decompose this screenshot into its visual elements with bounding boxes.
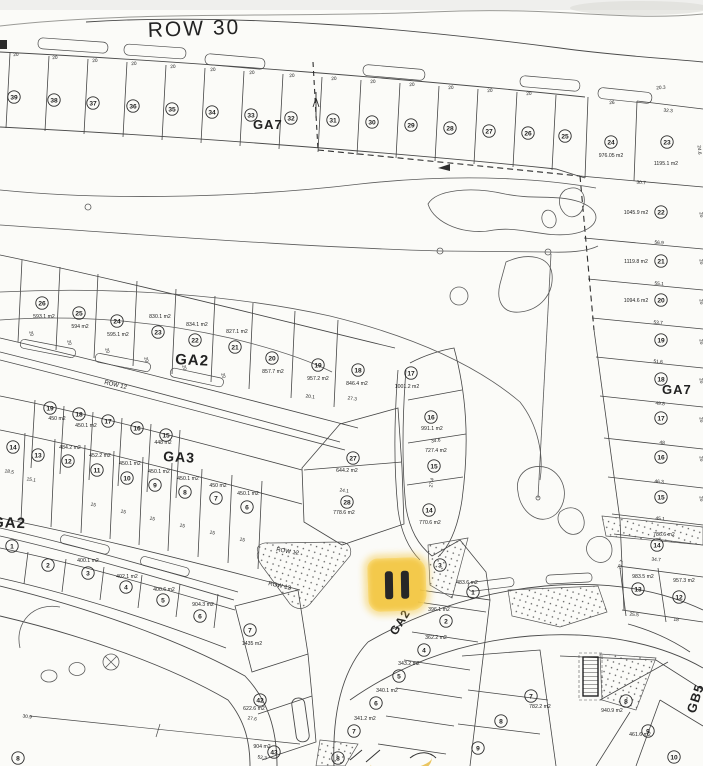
- region-label: ROW 30: [147, 16, 240, 42]
- map-canvas: ROW 30GA7GA7GA2GA3GA2GA2GB5ROW 12ROW 12R…: [0, 0, 703, 766]
- dim-label: 46.3: [654, 479, 664, 486]
- dim-label: 15: [209, 530, 216, 537]
- svg-text:20: 20: [268, 355, 276, 362]
- area-label: 400.1 m2: [77, 558, 99, 564]
- lot-number: 19: [312, 359, 324, 371]
- svg-text:6: 6: [374, 700, 378, 707]
- svg-text:19: 19: [46, 405, 54, 412]
- area-label: 644.2 m2: [336, 468, 358, 474]
- region-label: GA2: [387, 607, 414, 638]
- lot-number: 18: [655, 373, 667, 385]
- lot-number: 9: [472, 742, 484, 754]
- area-label: 450 m2: [48, 416, 65, 422]
- area-label: 461.6 m2: [629, 732, 651, 738]
- svg-text:18: 18: [657, 376, 665, 383]
- svg-text:13: 13: [634, 586, 642, 593]
- lot-number: 25: [73, 307, 85, 319]
- pause-icon-bar: [385, 571, 393, 599]
- lot-number: 4: [120, 581, 132, 593]
- area-label: 622.6 m2: [243, 706, 265, 712]
- plat-map-page: ROW 30GA7GA7GA2GA3GA2GA2GB5ROW 12ROW 12R…: [0, 0, 703, 766]
- svg-text:14: 14: [425, 507, 433, 514]
- svg-text:15: 15: [162, 432, 170, 439]
- dim-label: 20: [13, 52, 19, 58]
- svg-text:39: 39: [10, 94, 18, 101]
- hatched-areas: [257, 516, 703, 766]
- dim-label: 52.3: [257, 754, 267, 761]
- dim-label: 15: [120, 509, 127, 516]
- dim-label: 15: [149, 516, 156, 523]
- area-label: 770.6 m2: [419, 520, 441, 526]
- svg-text:7: 7: [248, 627, 252, 634]
- lot-number: 17: [405, 367, 417, 379]
- svg-text:8: 8: [499, 718, 503, 725]
- area-label: 450.1 m2: [119, 461, 141, 467]
- area-label: 450 m2: [209, 483, 226, 489]
- lot-number: 26: [36, 297, 48, 309]
- dim-label: 45.1: [655, 516, 665, 523]
- lot-number: 8: [179, 486, 191, 498]
- svg-text:3: 3: [438, 562, 442, 569]
- dim-label: 15: [179, 523, 186, 530]
- dim-label: 20: [698, 417, 703, 424]
- svg-text:8: 8: [16, 755, 20, 762]
- area-label: 727.4 m2: [425, 448, 447, 454]
- lot-number: 28: [341, 496, 353, 508]
- lot-number: 13: [32, 449, 44, 461]
- svg-text:26: 26: [38, 300, 46, 307]
- dim-label: 20: [370, 79, 376, 85]
- svg-text:12: 12: [64, 458, 72, 465]
- svg-text:7: 7: [214, 495, 218, 502]
- lot-number: 34: [206, 106, 218, 118]
- lot-number: 31: [327, 114, 339, 126]
- area-label: 957.3 m2: [673, 578, 695, 584]
- svg-text:35: 35: [168, 106, 176, 113]
- area-label: 593.1 m2: [33, 314, 55, 320]
- dim-label: 24.1: [339, 487, 349, 494]
- dim-label: 20: [526, 91, 532, 97]
- svg-text:16: 16: [427, 414, 435, 421]
- dim-label: 49.8: [655, 401, 665, 408]
- svg-text:6: 6: [245, 504, 249, 511]
- lot-number: 2: [440, 615, 452, 627]
- svg-text:20: 20: [657, 297, 665, 304]
- lot-number: 10: [121, 472, 133, 484]
- area-label: 484.2 m2: [59, 445, 81, 451]
- lot-number: 6: [370, 697, 382, 709]
- svg-text:32: 32: [287, 115, 295, 122]
- area-label: 786.6 m2: [653, 532, 675, 538]
- area-label: 400.6 m2: [153, 587, 175, 593]
- svg-text:18: 18: [354, 367, 362, 374]
- area-label: 340.1 m2: [376, 688, 398, 694]
- area-label: 957.2 m2: [307, 376, 329, 382]
- lot-number: 7: [348, 725, 360, 737]
- lot-number: 25: [559, 130, 571, 142]
- svg-text:25: 25: [75, 310, 83, 317]
- svg-text:14: 14: [9, 444, 17, 451]
- lot-number: 2: [42, 559, 54, 571]
- dim-label: 20.3: [656, 85, 666, 92]
- dim-label: 53.7: [653, 320, 663, 327]
- svg-text:28: 28: [446, 125, 454, 132]
- dim-label: 20: [170, 64, 176, 70]
- lot-number: 38: [48, 94, 60, 106]
- svg-text:17: 17: [104, 418, 112, 425]
- area-label: 402.1 m2: [116, 574, 138, 580]
- lot-number: 1: [467, 586, 479, 598]
- svg-text:18: 18: [75, 411, 83, 418]
- area-label: 857.7 m2: [262, 369, 284, 375]
- area-label: 362.2 m2: [425, 635, 447, 641]
- svg-text:11: 11: [94, 467, 101, 474]
- highlight-marker[interactable]: [367, 557, 427, 612]
- svg-text:17: 17: [407, 370, 415, 377]
- dim-label: 32.3: [663, 108, 673, 115]
- lot-number: 16: [655, 451, 667, 463]
- lot-number: 15: [655, 491, 667, 503]
- svg-text:21: 21: [657, 258, 665, 265]
- region-label: GA2: [0, 514, 26, 532]
- dim-label: 20: [698, 212, 703, 219]
- lot-number: 28: [444, 122, 456, 134]
- dim-label: 20: [131, 61, 137, 67]
- dim-label: 20: [289, 73, 295, 79]
- lot-number: 32: [285, 112, 297, 124]
- lot-number: 21: [655, 255, 667, 267]
- pause-icon-bar: [401, 570, 409, 598]
- lot-number: 24: [605, 136, 617, 148]
- lot-number: 14: [7, 441, 19, 453]
- dim-label: 51.6: [653, 359, 663, 366]
- dim-label: 18: [673, 617, 679, 623]
- area-label: 940.9 m2: [601, 708, 623, 714]
- dim-label: 30.7: [636, 180, 646, 187]
- svg-text:12: 12: [675, 594, 683, 601]
- svg-text:29: 29: [407, 122, 415, 129]
- svg-text:5: 5: [161, 597, 165, 604]
- building-footprint: [583, 657, 598, 696]
- lot-number: 14: [423, 504, 435, 516]
- svg-text:37: 37: [89, 100, 97, 107]
- dim-label: 34.6: [431, 437, 441, 444]
- area-label: 450.1 m2: [75, 423, 97, 429]
- lot-number: 26: [522, 127, 534, 139]
- labels-layer: ROW 30GA7GA7GA2GA3GA2GA2GB5ROW 12ROW 12R…: [0, 16, 703, 764]
- region-label: GA7: [662, 382, 692, 397]
- svg-text:30: 30: [368, 119, 376, 126]
- dim-label: 20: [698, 378, 703, 385]
- area-label: 343.2 m2: [398, 661, 420, 667]
- dashed-boundary: [313, 62, 594, 330]
- area-label: 1435 m2: [242, 641, 262, 647]
- dim-label: 34.7: [651, 557, 661, 564]
- lot-number: 19: [655, 334, 667, 346]
- svg-text:13: 13: [34, 452, 42, 459]
- dim-label: 20: [487, 88, 493, 94]
- dim-label: 20: [65, 339, 72, 346]
- lot-number: 36: [127, 100, 139, 112]
- lot-number: 4: [418, 644, 430, 656]
- svg-text:9: 9: [476, 745, 480, 752]
- dim-label: 20: [409, 82, 415, 88]
- area-label: 396.1 m2: [428, 607, 450, 613]
- area-label: 991.1 m2: [421, 426, 443, 432]
- dim-label: 30.9: [22, 713, 32, 720]
- lot-number: 20: [266, 352, 278, 364]
- svg-text:7: 7: [352, 728, 356, 735]
- dim-label: 20: [142, 356, 149, 363]
- lot-number: 22: [189, 334, 201, 346]
- region-label: GA7: [253, 117, 283, 132]
- lot-number: 7: [210, 492, 222, 504]
- lot-number: 23: [661, 136, 673, 148]
- svg-text:19: 19: [314, 362, 322, 369]
- area-label: 904 m2: [253, 744, 270, 750]
- svg-text:8: 8: [624, 698, 628, 705]
- dim-label: 55.1: [654, 281, 664, 288]
- lot-number: 30: [366, 116, 378, 128]
- svg-text:22: 22: [191, 337, 199, 344]
- svg-text:15: 15: [430, 463, 438, 470]
- area-label: 1119.8 m2: [624, 259, 648, 265]
- area-label: 1195.1 m2: [654, 161, 678, 167]
- lot-number: 23: [152, 326, 164, 338]
- lot-number: 11: [91, 464, 103, 476]
- dim-label: 25.5: [629, 612, 639, 619]
- dim-label: 20: [698, 339, 703, 346]
- lot-number: 10: [668, 751, 680, 763]
- lot-number: 7: [525, 690, 537, 702]
- dim-label: 20: [698, 456, 703, 463]
- area-label: 983.5 m2: [632, 574, 654, 580]
- svg-text:1: 1: [10, 543, 14, 550]
- lot-number: 15: [428, 460, 440, 472]
- svg-text:5: 5: [397, 673, 401, 680]
- dim-label: 20: [331, 76, 337, 82]
- area-label: 834.1 m2: [186, 322, 208, 328]
- dim-label: 20: [92, 58, 98, 64]
- lot-number: 7: [244, 624, 256, 636]
- dim-label: 15: [90, 502, 97, 509]
- lot-number: 5: [157, 594, 169, 606]
- area-label: 450.1 m2: [237, 491, 259, 497]
- dim-label: 20.1: [305, 393, 315, 400]
- region-label: GA3: [163, 448, 196, 466]
- lot-number: 22: [655, 206, 667, 218]
- lot-number: 12: [62, 455, 74, 467]
- lot-number: 39: [8, 91, 20, 103]
- dim-label: 20: [27, 330, 34, 337]
- svg-text:10: 10: [670, 754, 678, 761]
- area-label: 976.05 m2: [599, 153, 624, 159]
- svg-text:24: 24: [607, 139, 615, 146]
- dim-label: 24.6: [696, 145, 703, 155]
- lot-number: 12: [673, 591, 685, 603]
- area-label: 782.2 m2: [529, 704, 551, 710]
- svg-text:15: 15: [657, 494, 665, 501]
- area-label: 846.4 m2: [346, 381, 368, 387]
- region-label: GB5: [684, 682, 703, 715]
- area-label: 450.1 m2: [148, 469, 170, 475]
- dim-label: 20: [698, 299, 703, 306]
- dim-label: 20: [210, 67, 216, 73]
- area-label: 448 m2: [154, 440, 171, 446]
- lot-number: 6: [194, 610, 206, 622]
- dim-label: 18.5: [4, 468, 15, 476]
- svg-text:34: 34: [208, 109, 216, 116]
- svg-text:23: 23: [663, 139, 671, 146]
- svg-text:4: 4: [124, 584, 128, 591]
- dim-label: 20: [698, 496, 703, 503]
- lot-number: 6: [241, 501, 253, 513]
- svg-text:23: 23: [154, 329, 162, 336]
- dim-label: 26: [609, 100, 615, 106]
- road-lines: [0, 19, 703, 766]
- dim-label: 15: [239, 537, 246, 544]
- svg-text:31: 31: [329, 117, 337, 124]
- svg-text:16: 16: [133, 425, 141, 432]
- svg-text:16: 16: [657, 454, 665, 461]
- dim-label: 20: [698, 259, 703, 266]
- svg-text:36: 36: [129, 103, 137, 110]
- svg-text:21: 21: [231, 344, 239, 351]
- dim-label: 48: [659, 440, 665, 446]
- dim-label: 27.6: [247, 715, 257, 722]
- svg-text:2: 2: [444, 618, 448, 625]
- svg-text:7: 7: [529, 693, 533, 700]
- svg-text:43: 43: [270, 749, 278, 756]
- lot-number: 37: [87, 97, 99, 109]
- lot-number: 27: [483, 125, 495, 137]
- dim-label: 20: [249, 70, 255, 76]
- svg-text:38: 38: [50, 97, 58, 104]
- svg-text:33: 33: [247, 112, 255, 119]
- svg-text:17: 17: [657, 415, 665, 422]
- dim-label: 15.1: [26, 476, 37, 484]
- lot-number: 16: [425, 411, 437, 423]
- svg-text:28: 28: [343, 499, 351, 506]
- dim-label: 20: [103, 347, 110, 354]
- area-label: 904.3 m2: [192, 602, 214, 608]
- lot-number: 8: [495, 715, 507, 727]
- lot-number: 9: [149, 479, 161, 491]
- svg-text:27: 27: [485, 128, 493, 135]
- dim-label: 56.9: [654, 240, 664, 247]
- svg-text:14: 14: [653, 542, 661, 549]
- lot-number: 29: [405, 119, 417, 131]
- lot-number: 27: [347, 452, 359, 464]
- svg-text:26: 26: [524, 130, 532, 137]
- dim-label: 27.3: [347, 395, 357, 402]
- area-label: 450.1 m2: [177, 476, 199, 482]
- dim-label: 21.7: [617, 559, 626, 570]
- lot-number: 33: [245, 109, 257, 121]
- area-label: 594 m2: [71, 324, 88, 330]
- lot-number: 18: [352, 364, 364, 376]
- svg-text:2: 2: [46, 562, 50, 569]
- dim-label: 27.4: [428, 477, 436, 488]
- lot-number: 35: [166, 103, 178, 115]
- svg-text:19: 19: [657, 337, 665, 344]
- svg-text:3: 3: [86, 570, 90, 577]
- svg-text:1: 1: [471, 589, 475, 596]
- scan-artifacts: [0, 0, 703, 49]
- area-label: 1001.2 m2: [395, 384, 420, 390]
- area-label: 778.6 m2: [333, 510, 355, 516]
- lot-number: 17: [655, 412, 667, 424]
- area-label: 452.2 m2: [89, 453, 111, 459]
- svg-text:8: 8: [336, 755, 340, 762]
- area-label: 1094.6 m2: [624, 298, 649, 304]
- area-label: 830.1 m2: [149, 314, 171, 320]
- svg-text:25: 25: [561, 133, 569, 140]
- region-label: GA2: [175, 351, 210, 370]
- lot-number: 20: [655, 294, 667, 306]
- area-label: 595.1 m2: [107, 332, 129, 338]
- area-label: 827.1 m2: [226, 329, 248, 335]
- lot-number: 13: [632, 583, 644, 595]
- area-label: 1045.9 m2: [624, 210, 649, 216]
- svg-text:10: 10: [123, 475, 131, 482]
- svg-text:24: 24: [113, 318, 121, 325]
- svg-text:6: 6: [198, 613, 202, 620]
- area-label: 483.6 m2: [456, 580, 478, 586]
- svg-text:27: 27: [349, 455, 357, 462]
- svg-text:4: 4: [422, 647, 426, 654]
- lot-number: 21: [229, 341, 241, 353]
- lot-number: 8: [12, 752, 24, 764]
- dim-label: 20: [52, 55, 58, 61]
- svg-text:9: 9: [153, 482, 157, 489]
- dim-label: 20: [219, 372, 226, 379]
- area-label: 341.2 m2: [354, 716, 376, 722]
- dim-label: 20: [448, 85, 454, 91]
- svg-text:8: 8: [183, 489, 187, 496]
- svg-text:22: 22: [657, 209, 665, 216]
- svg-text:42: 42: [256, 697, 264, 704]
